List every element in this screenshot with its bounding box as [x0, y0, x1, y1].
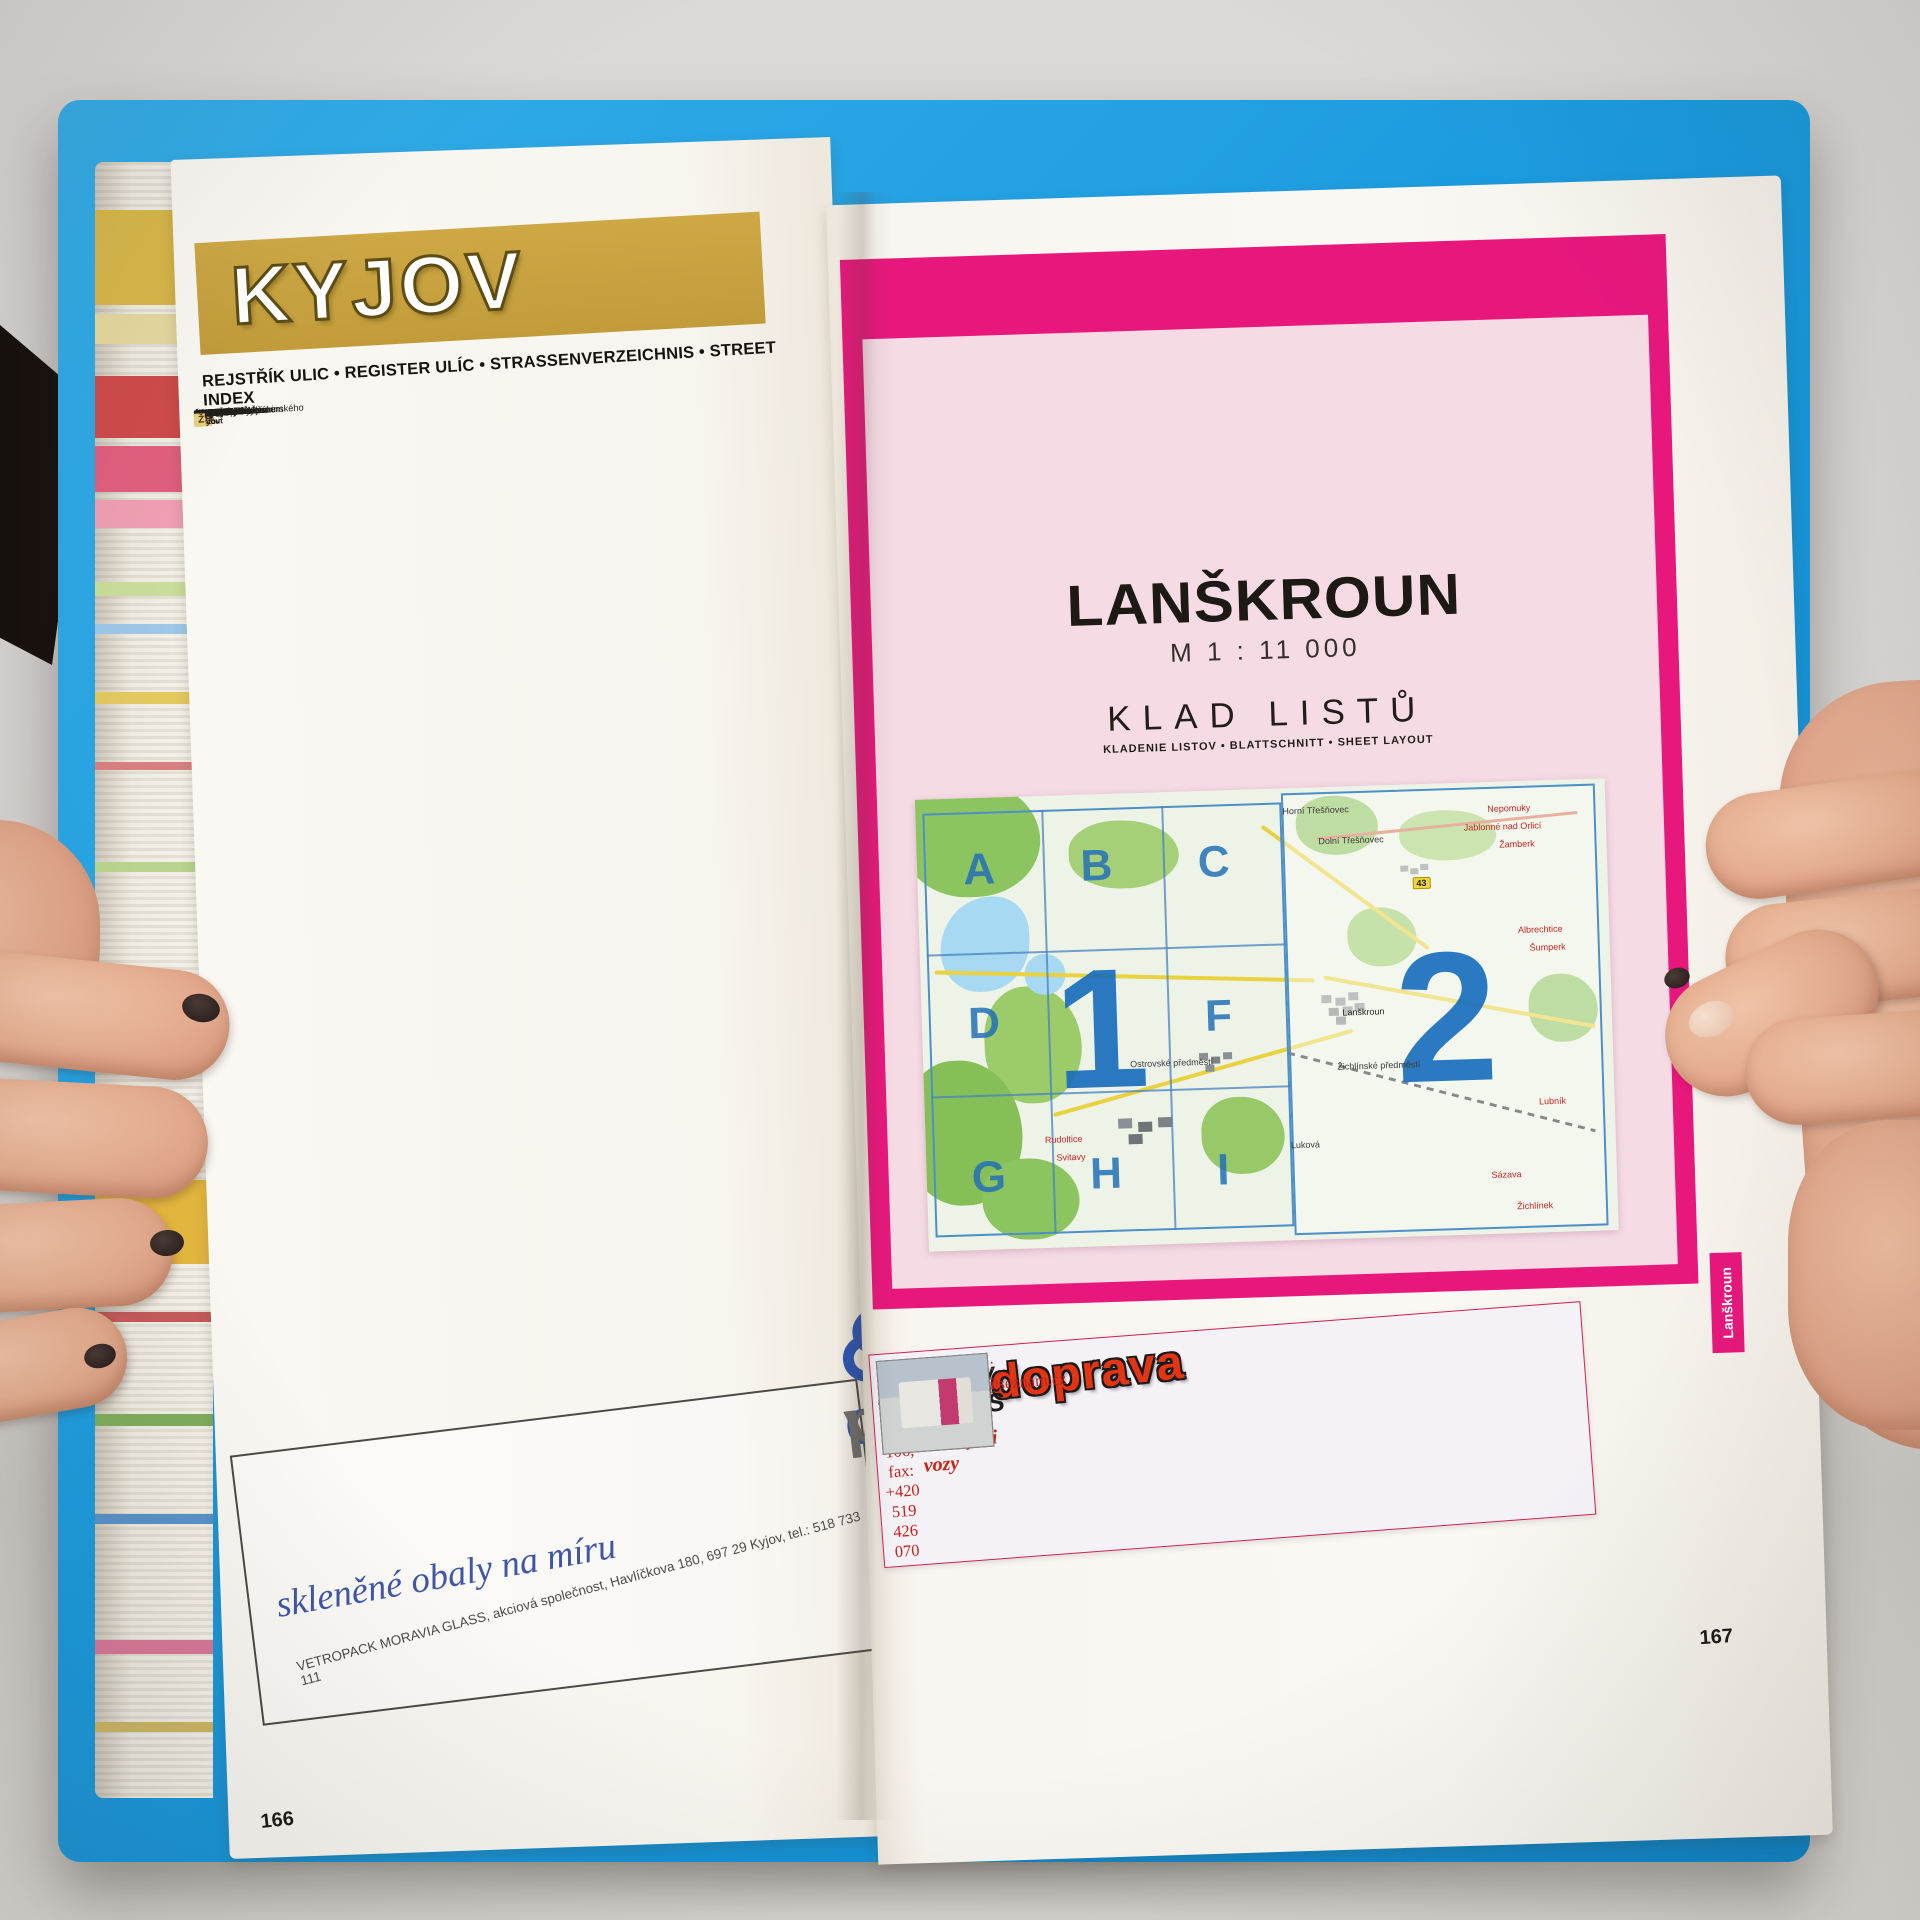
- edge-colour-mark: [95, 1414, 213, 1426]
- edge-colour-mark: [95, 1640, 213, 1654]
- edge-colour-mark: [95, 1312, 213, 1322]
- map-place-label: Žamberk: [1499, 839, 1535, 850]
- map-grid-letter: I: [1216, 1145, 1230, 1195]
- edge-colour-mark: [95, 1514, 213, 1524]
- left-finger: [0, 1075, 211, 1202]
- street-index-table: ulicestranaklad listůBBezručova1641FBorš…: [193, 363, 889, 888]
- photo-scene: KYJOV REJSTŘÍK ULIC • REGISTER ULÍC • ST…: [0, 0, 1920, 1920]
- map-place-label: Albrechtice: [1518, 924, 1563, 935]
- map-grid-letter: A: [963, 845, 996, 896]
- chapter-tab: Lanškroun: [1710, 1252, 1745, 1353]
- map-grid-letter: C: [1197, 837, 1230, 888]
- page-number-right: 167: [1699, 1625, 1734, 1650]
- map-place-label: Svitavy: [1056, 1151, 1085, 1162]
- map-place-label: Dolní Třešňovec: [1318, 834, 1384, 846]
- map-grid-letter: H: [1089, 1148, 1122, 1199]
- map-grid-letter: B: [1080, 841, 1113, 892]
- map-place-label: Sázava: [1491, 1169, 1521, 1180]
- lanskroun-panel: LANŠKROUN M 1 : 11 000 KLAD LISTŮ KLADEN…: [840, 234, 1699, 1309]
- map-route-shield: 43: [1412, 877, 1430, 890]
- vetropack-ad: vetropack skleněné obaly na míru VETROPA…: [230, 1379, 890, 1726]
- page-number-left: 166: [259, 1808, 295, 1834]
- edge-colour-mark: [95, 1722, 213, 1732]
- map-place-label: Horní Třešňovec: [1282, 804, 1349, 816]
- map-sheet-number: 2: [1392, 924, 1501, 1112]
- map-sheet-number: 1: [1052, 943, 1152, 1116]
- autodoprava-ad: Autodoprava Jaroslav TRUMPEŠ Rozvoz pale…: [868, 1301, 1596, 1568]
- truck-photo: [876, 1353, 995, 1455]
- map-place-label: Nepomuky: [1487, 803, 1530, 814]
- city-title-banner: KYJOV: [194, 212, 765, 355]
- map-place-label: Lanškroun: [1342, 1006, 1384, 1017]
- ad-photo-column-right: [876, 1353, 988, 1361]
- map-place-label: Rudoltice: [1045, 1133, 1083, 1144]
- map-place-label: Žichlínek: [1517, 1200, 1553, 1211]
- left-page: KYJOV REJSTŘÍK ULIC • REGISTER ULÍC • ST…: [171, 137, 890, 1859]
- sheet-layout-map: ABCDFGHI12Horní TřešňovecDolní Třešňovec…: [915, 778, 1619, 1251]
- map-grid-letter: F: [1204, 991, 1232, 1042]
- index-section-letter: Ž: [194, 413, 205, 427]
- map-place-label: Luková: [1291, 1139, 1320, 1150]
- map-place-label: Lubník: [1539, 1096, 1566, 1107]
- panel-top-band: [858, 253, 1650, 340]
- city-title: KYJOV: [195, 234, 527, 346]
- map-grid-letter: G: [971, 1152, 1007, 1203]
- map-place-label: Šumperk: [1530, 942, 1566, 953]
- map-grid-letter: D: [967, 998, 1000, 1049]
